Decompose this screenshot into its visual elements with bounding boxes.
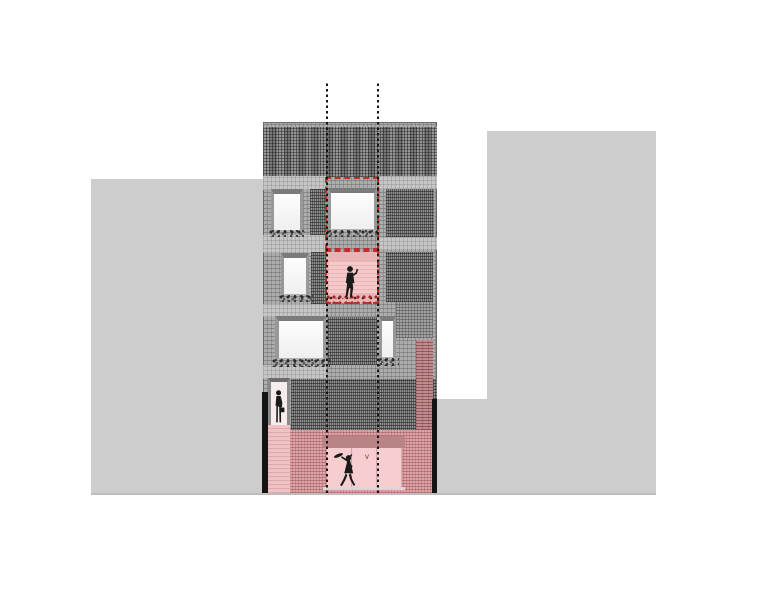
window-sill-plants — [377, 357, 399, 366]
left-neighbor-building — [91, 179, 263, 494]
facade-dark-patch — [386, 189, 434, 237]
window-sill-plants — [272, 358, 330, 367]
facade-dark-patch — [310, 189, 326, 235]
axis-line-left — [326, 82, 328, 493]
window-floor2-narrow — [379, 316, 396, 359]
under-door-light-pink — [268, 424, 290, 493]
ground-line — [91, 493, 656, 495]
axis-line-right — [377, 82, 379, 493]
window-floor3-left — [281, 253, 309, 296]
slab-band — [379, 237, 437, 250]
party-wall-left — [262, 392, 268, 493]
facade-dark-patch — [386, 252, 433, 302]
slab-band — [263, 235, 326, 253]
right-neighbor-annex — [437, 399, 487, 494]
opening-header — [323, 436, 405, 448]
window-sill-plants — [279, 294, 313, 302]
facade-top-dark-band — [263, 127, 437, 177]
facade-dark-patch — [328, 317, 377, 365]
entrance-door — [268, 378, 290, 425]
elevation-scene: v — [0, 0, 760, 600]
walking-woman-icon — [333, 450, 365, 488]
facade-medium-patch — [396, 302, 433, 338]
highlight-dash-rect-lower — [325, 250, 379, 304]
window-floor4-left — [271, 189, 303, 232]
slab-band — [379, 176, 437, 189]
window-floor2-large — [275, 316, 327, 360]
facade-dark-patch — [311, 252, 326, 304]
annotation-mark: v — [365, 453, 369, 461]
highlight-dash-rect-upper — [325, 177, 379, 250]
ground-floor-opening: v — [323, 436, 405, 490]
window-sill-plants — [269, 229, 305, 237]
slab-band — [263, 176, 326, 190]
party-wall-right — [432, 399, 437, 493]
man-with-bag-icon — [272, 385, 286, 425]
slab-band — [263, 365, 326, 379]
right-neighbor-building — [487, 131, 656, 494]
